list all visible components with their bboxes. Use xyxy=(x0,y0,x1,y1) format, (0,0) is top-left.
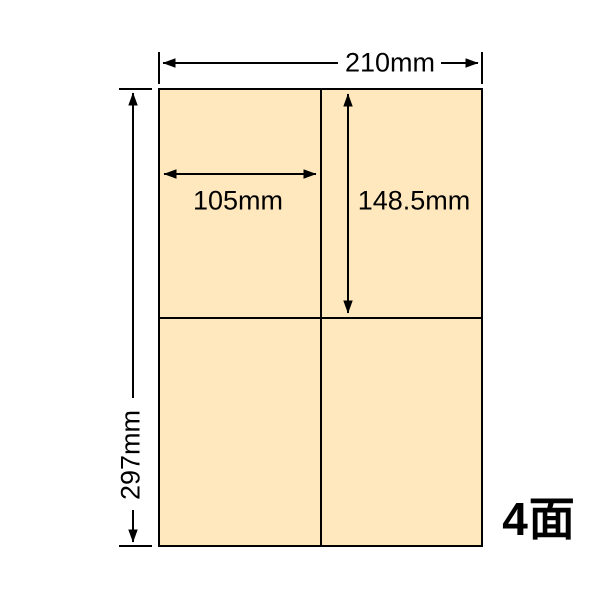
cell-height-label: 148.5mm xyxy=(358,188,471,215)
label-sheet-dimension-diagram: 210mm 297mm 105mm 148.5mm 4面 xyxy=(0,0,600,600)
sheet-width-label: 210mm xyxy=(345,50,435,77)
cell-width-label: 105mm xyxy=(193,188,283,215)
piece-count-label: 4面 xyxy=(502,496,576,542)
sheet-height-label: 297mm xyxy=(118,410,145,500)
